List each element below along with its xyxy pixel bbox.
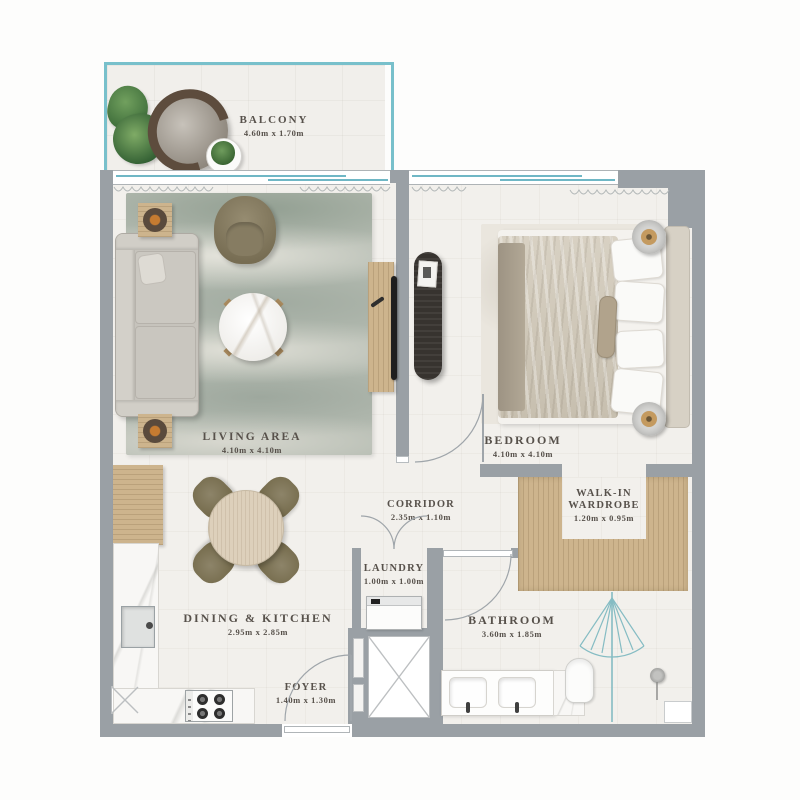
services-shaft bbox=[368, 636, 430, 718]
room-dims: 1.20m x 0.95m bbox=[560, 514, 648, 524]
room-dims: 4.60m x 1.70m bbox=[239, 129, 308, 139]
dining-kitchen-label: DINING & KITCHEN 2.95m x 2.85m bbox=[183, 612, 332, 638]
bedroom-window-glass-slider bbox=[500, 179, 615, 181]
balcony-window-glass-slider bbox=[268, 179, 388, 181]
balcony-window bbox=[113, 170, 390, 185]
wall-laundry-left bbox=[352, 548, 361, 634]
room-dims: 4.10m x 4.10m bbox=[202, 446, 301, 456]
table-lamp-icon bbox=[143, 208, 167, 232]
room-name: CORRIDOR bbox=[387, 499, 455, 511]
room-dims: 1.40m x 1.30m bbox=[276, 696, 336, 706]
sofa-throw-pillow bbox=[137, 252, 167, 286]
dining-table bbox=[208, 490, 284, 566]
wall-bedroom-south-right bbox=[646, 464, 692, 477]
wall-bottom bbox=[100, 724, 705, 737]
kitchen-counter-bottom bbox=[113, 688, 255, 724]
room-name: WALK-IN WARDROBE bbox=[560, 488, 648, 512]
corridor-label: CORRIDOR 2.35m x 1.10m bbox=[387, 499, 455, 523]
toilet bbox=[565, 658, 594, 703]
shaft-vent-slot bbox=[353, 638, 364, 678]
door-jamb bbox=[396, 456, 409, 463]
floor-plan: BALCONY 4.60m x 1.70m bbox=[0, 0, 800, 800]
washing-machine-display bbox=[371, 599, 380, 604]
tv-icon bbox=[391, 276, 397, 380]
room-dims: 2.95m x 2.85m bbox=[183, 628, 332, 638]
room-dims: 2.35m x 1.10m bbox=[387, 513, 455, 523]
room-name: DINING & KITCHEN bbox=[183, 612, 332, 626]
bedroom-window bbox=[409, 170, 618, 185]
kitchen-tall-cabinet bbox=[113, 465, 163, 545]
room-name: BEDROOM bbox=[484, 434, 561, 448]
stove-controls bbox=[186, 691, 193, 721]
coffee-table bbox=[219, 293, 287, 361]
room-name: FOYER bbox=[276, 682, 336, 694]
balcony-label: BALCONY 4.60m x 1.70m bbox=[239, 114, 308, 138]
balcony-table-plant-icon bbox=[211, 141, 235, 165]
living-area-label: LIVING AREA 4.10m x 4.10m bbox=[202, 431, 301, 456]
bed-blanket-fold bbox=[498, 243, 525, 411]
room-name: BATHROOM bbox=[468, 614, 556, 628]
room-dims: 3.60m x 1.85m bbox=[468, 630, 556, 640]
wall-step-top-right bbox=[668, 186, 705, 228]
bathroom-door-leaf bbox=[443, 550, 513, 557]
bench-paper-item bbox=[423, 267, 431, 278]
room-dims: 1.00m x 1.00m bbox=[364, 577, 425, 587]
bedroom-label: BEDROOM 4.10m x 4.10m bbox=[484, 434, 561, 460]
stove-burner-icon bbox=[197, 708, 208, 719]
stove-burner-icon bbox=[214, 694, 225, 705]
wall-left bbox=[100, 170, 113, 737]
wall-divider-living-bedroom bbox=[396, 170, 409, 460]
armchair-seat bbox=[226, 222, 264, 256]
shaft-vent-slot bbox=[353, 684, 364, 712]
bed-accent-pillow bbox=[596, 296, 617, 359]
stove-burner-icon bbox=[214, 708, 225, 719]
kitchen-faucet-icon bbox=[146, 622, 153, 629]
wall-right bbox=[692, 170, 705, 737]
sofa-back bbox=[116, 234, 135, 416]
stove-burner-icon bbox=[197, 694, 208, 705]
bathroom-label: BATHROOM 3.60m x 1.85m bbox=[468, 614, 556, 640]
nightstand-lamp-icon bbox=[641, 229, 657, 245]
balcony-window-glass bbox=[116, 175, 346, 177]
table-lamp-icon bbox=[143, 419, 167, 443]
room-name: LIVING AREA bbox=[202, 431, 301, 444]
bathroom-corner-niche bbox=[664, 701, 692, 723]
bed-headboard bbox=[664, 226, 690, 428]
bed-pillow bbox=[613, 280, 666, 323]
room-name: LAUNDRY bbox=[364, 563, 425, 575]
vanity-faucet-icon bbox=[466, 702, 470, 713]
nightstand-lamp-icon bbox=[641, 411, 657, 427]
room-name: BALCONY bbox=[239, 114, 308, 127]
foyer-label: FOYER 1.40m x 1.30m bbox=[276, 682, 336, 706]
entry-door-leaf bbox=[284, 726, 350, 733]
bed-pillow bbox=[615, 329, 665, 369]
laundry-label: LAUNDRY 1.00m x 1.00m bbox=[364, 563, 425, 587]
wardrobe-label: WALK-IN WARDROBE 1.20m x 0.95m bbox=[560, 488, 648, 524]
room-dims: 4.10m x 4.10m bbox=[484, 450, 561, 460]
wall-bedroom-south-left bbox=[480, 464, 562, 477]
shower-drain-icon bbox=[650, 668, 665, 683]
bedroom-window-glass bbox=[412, 175, 582, 177]
sofa-cushion bbox=[135, 326, 196, 399]
vanity-faucet-icon bbox=[515, 702, 519, 713]
